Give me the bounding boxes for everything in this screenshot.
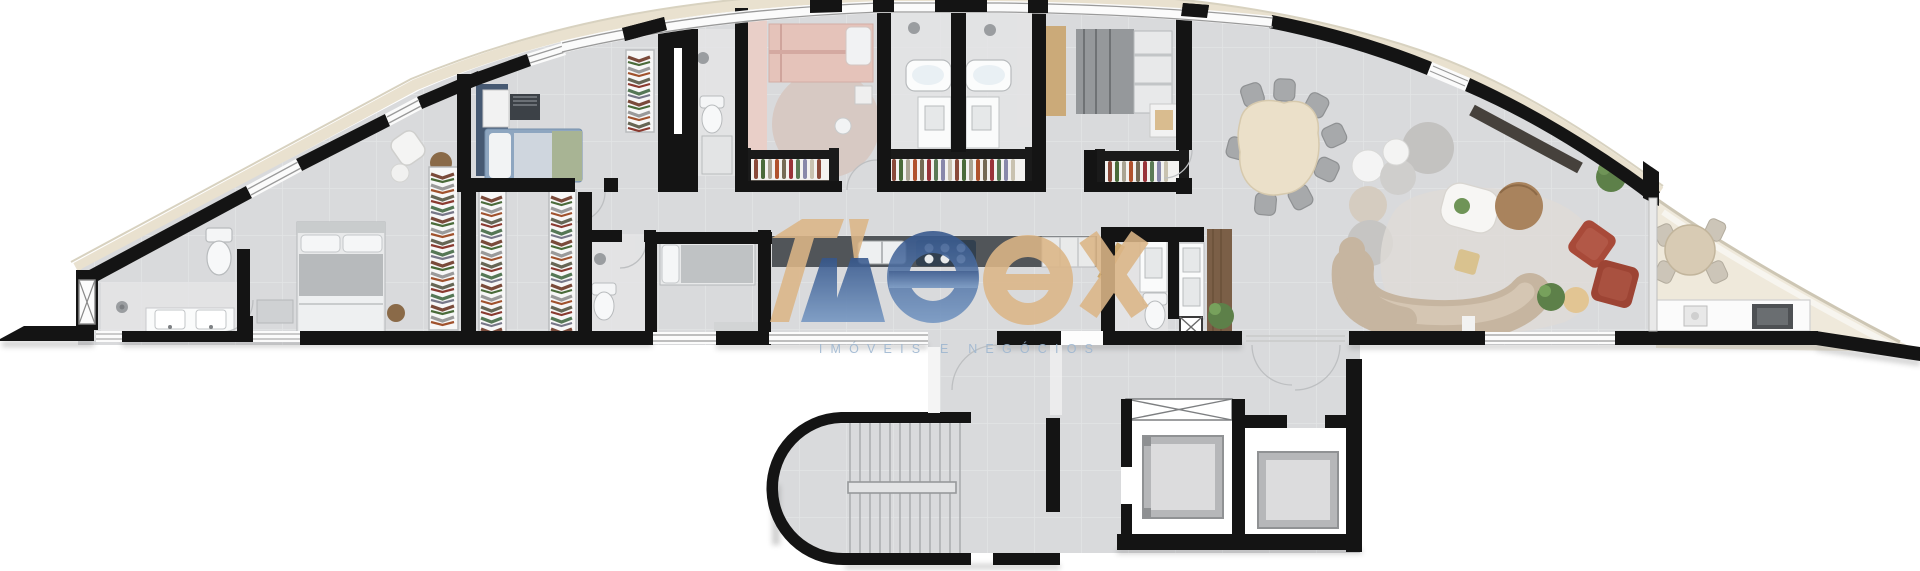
svg-text:IMÓVEIS E NEGÓCIOS: IMÓVEIS E NEGÓCIOS	[819, 341, 1101, 356]
